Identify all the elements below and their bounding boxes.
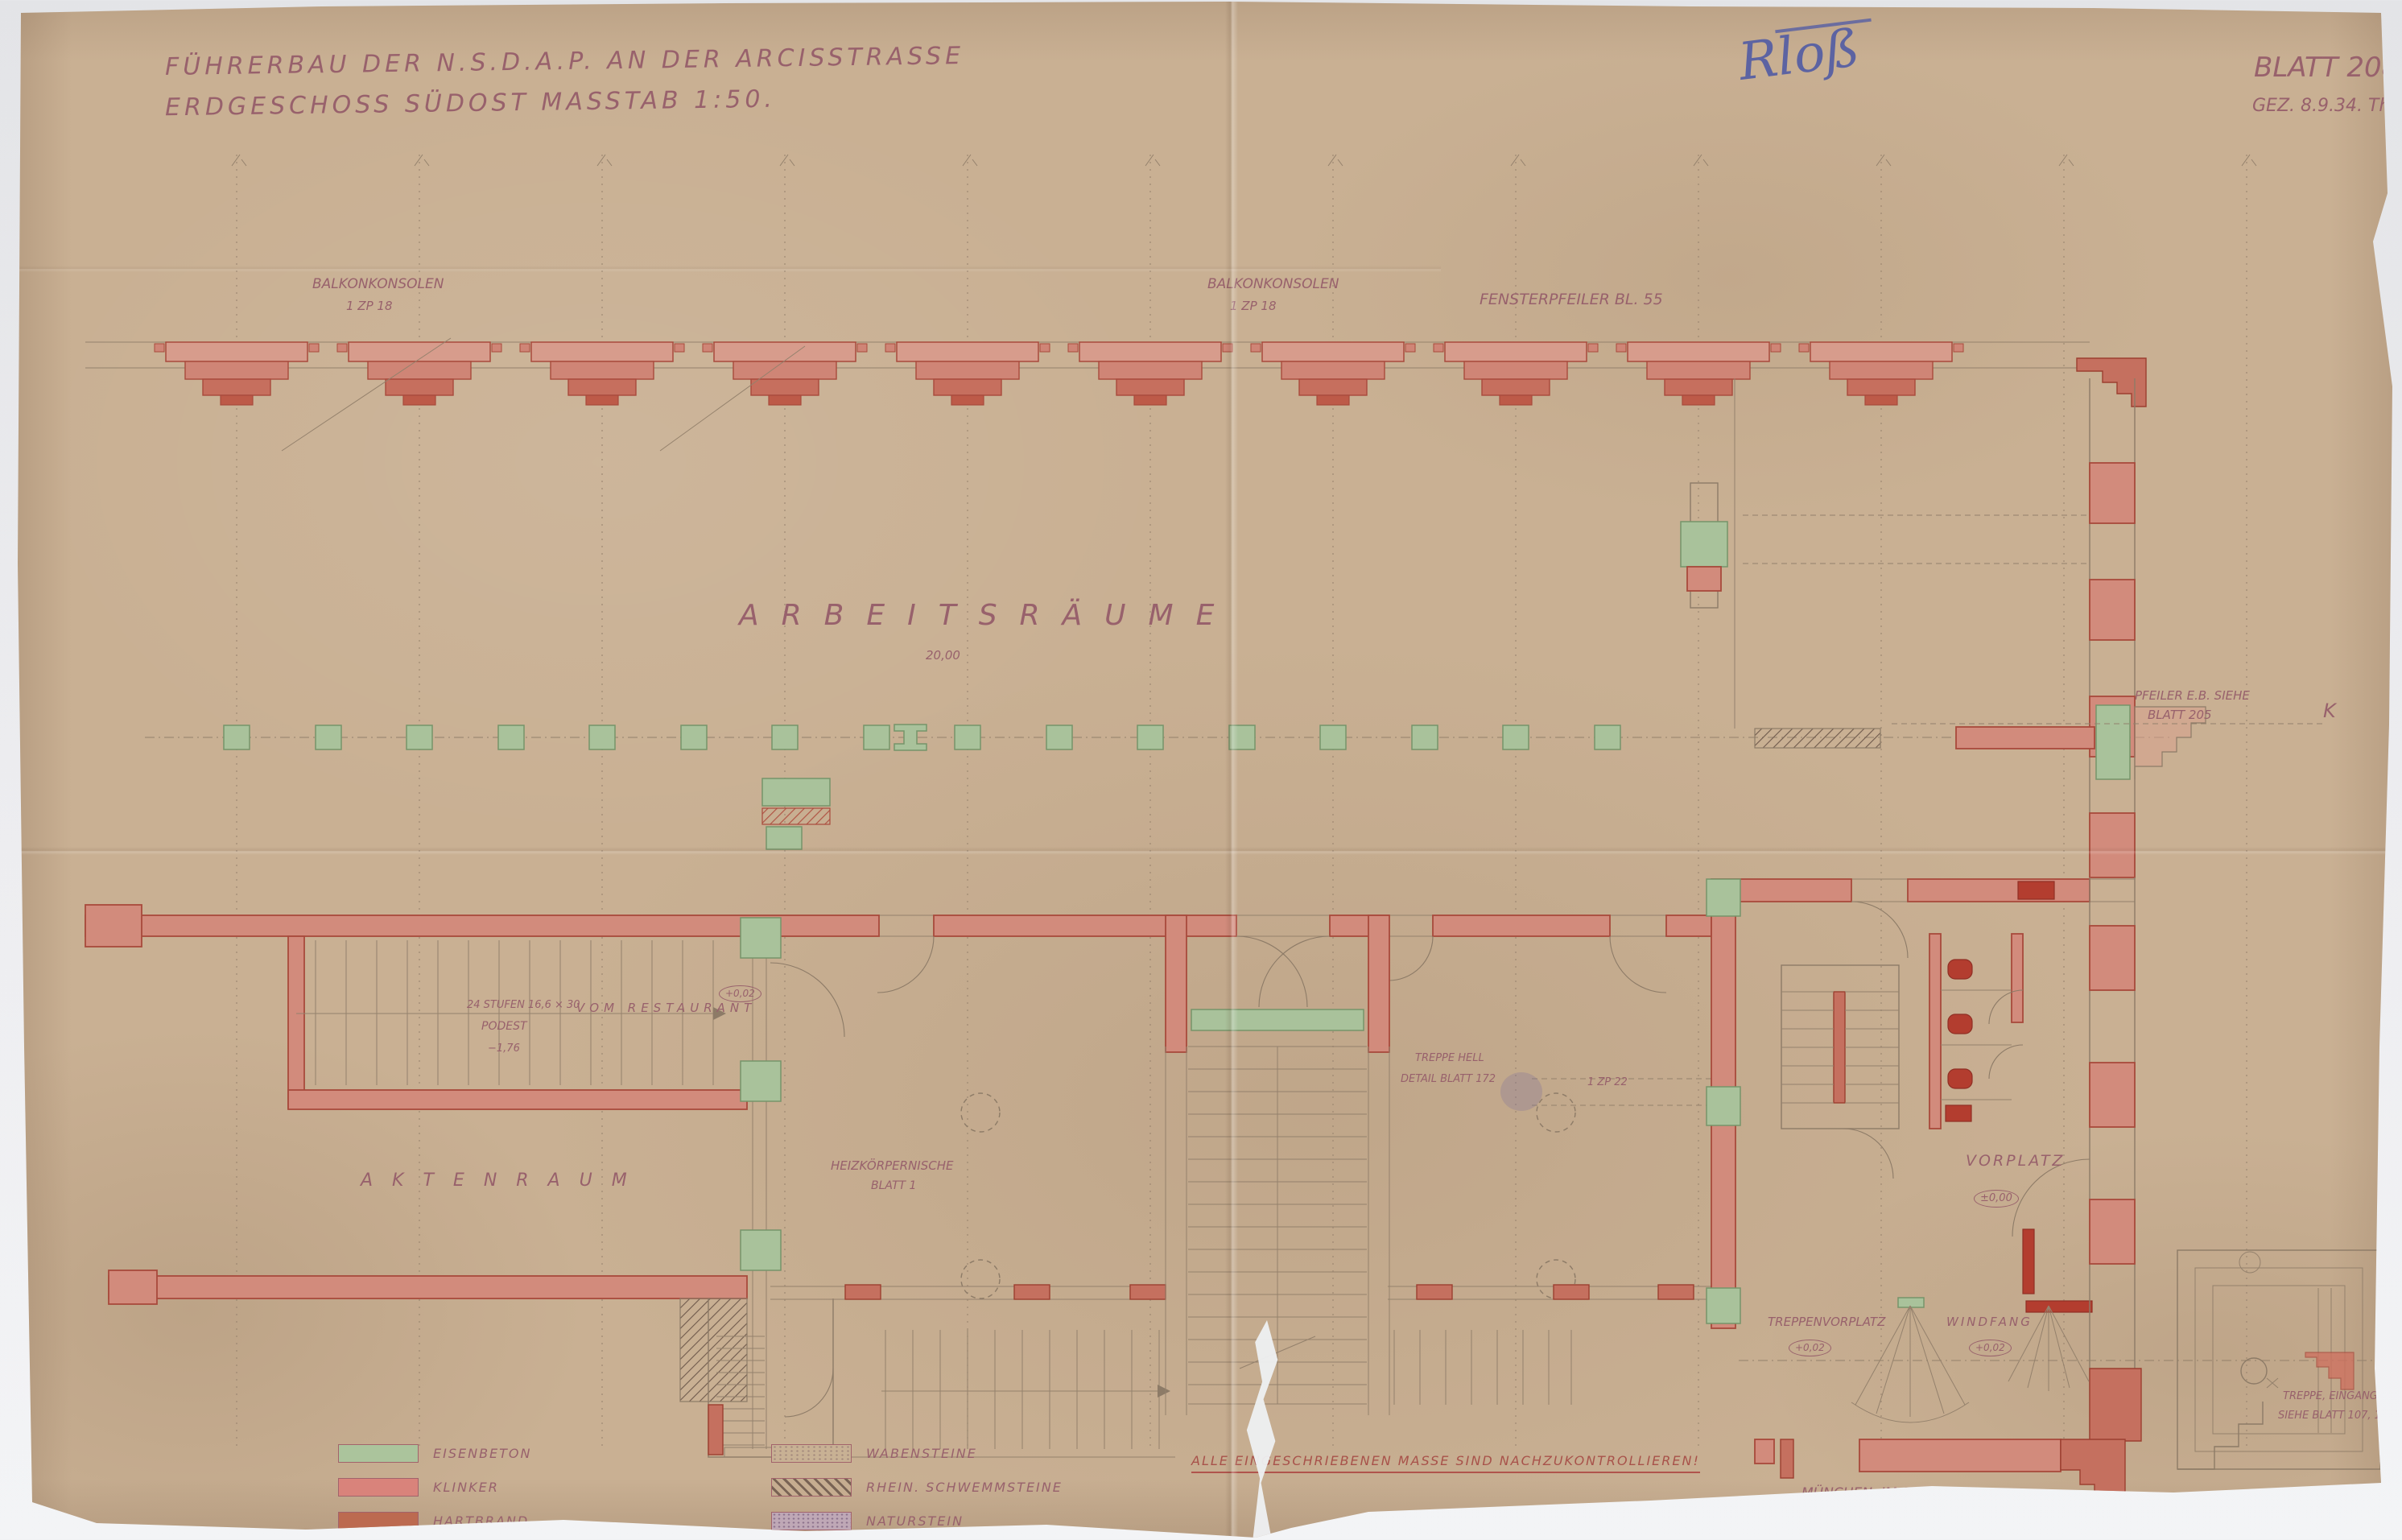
room-label-treppenvorplatz: TREPPENVORPLATZ <box>1768 1315 1885 1329</box>
pfeiler-note-line1: PFEILER E.B. SIEHE <box>2135 689 2250 703</box>
legend-label-hartbrand: HARTBRAND <box>433 1514 529 1529</box>
vertical-fold-crease <box>1225 0 1238 1540</box>
drawing-sheet: FÜHRERBAU DER N.S.D.A.P. AN DER ARCISSTR… <box>0 0 2402 1540</box>
stair-steps-note: 24 STUFEN 16,6 × 30 <box>467 1000 580 1011</box>
level-plus-002-windfang: +0,02 <box>1969 1340 2012 1356</box>
pfeiler-note-line2: BLATT 205 <box>2148 708 2212 722</box>
entrance-stair-inset <box>2177 1250 2380 1469</box>
axis-mark-k: K <box>2323 700 2336 721</box>
level-zero: ±0,00 <box>1974 1190 2019 1208</box>
entrance-stair-note-line1: TREPPE, EINGANG <box>2283 1391 2378 1402</box>
legend-swatch-eisenbeton <box>338 1444 419 1463</box>
legend-swatch-wabensteine <box>771 1444 852 1463</box>
legend-label-naturstein: NATURSTEIN <box>866 1514 964 1529</box>
level-minus-176: −1,76 <box>488 1043 520 1055</box>
room-label-aktenraum: AKTENRAUM <box>361 1171 646 1191</box>
entrance-stair-note-line2: SIEHE BLATT 107, 108, 109 <box>2278 1410 2402 1422</box>
drawn-date: GEZ. 8.9.34. Th. <box>2252 97 2396 116</box>
stair-podest: PODEST <box>481 1021 527 1033</box>
centre-left-room <box>770 1093 1170 1449</box>
upper-right-rooms <box>1681 358 2146 877</box>
north-wall <box>85 879 2135 1007</box>
legend-label-eisenbeton: EISENBETON <box>433 1447 531 1461</box>
legend-row-schwemmsteine: RHEIN. SCHWEMMSTEINE <box>771 1478 1063 1497</box>
sheet-number: BLATT 208. <box>2254 53 2402 83</box>
horizontal-crease <box>0 847 2402 855</box>
room-label-vorplatz: VORPLATZ <box>1966 1153 2065 1170</box>
place-date: MÜNCHEN, IM SEPT. 1934. <box>1801 1486 1981 1501</box>
scan-background: FÜHRERBAU DER N.S.D.A.P. AN DER ARCISSTR… <box>0 0 2402 1540</box>
level-plus-002-stair: +0,02 <box>719 985 761 1002</box>
legend-swatch-schwemmsteine <box>771 1478 852 1497</box>
heizkoerpernische-line2: BLATT 1 <box>871 1180 916 1192</box>
central-staircase <box>1166 915 1389 1415</box>
legend-label-klinker: KLINKER <box>433 1480 499 1495</box>
legend-label-wabensteine: WABENSTEINE <box>866 1447 977 1461</box>
level-plus-002-treppenvorplatz: +0,02 <box>1789 1340 1831 1356</box>
duct-ref-zp22: 1 ZP 22 <box>1587 1077 1628 1088</box>
treppe-hell-detail-ref: DETAIL BLATT 172 <box>1401 1074 1496 1085</box>
dimension-20m: 20,00 <box>926 649 960 663</box>
stair-from-restaurant: VOM RESTAURANT <box>576 1001 756 1015</box>
legend-row-hartbrand: HARTBRAND <box>338 1512 529 1530</box>
legend-row-klinker: KLINKER <box>338 1478 499 1497</box>
legend-row-wabensteine: WABENSTEINE <box>771 1444 977 1463</box>
legend-label-schwemmsteine: RHEIN. SCHWEMMSTEINE <box>866 1480 1063 1495</box>
legend-row-naturstein: NATURSTEIN <box>771 1512 964 1530</box>
balkonkonsolen-label-1: BALKONKONSOLEN <box>312 277 444 292</box>
centre-right-room <box>1368 1072 1711 1405</box>
horizontal-crease-upper <box>0 266 1441 272</box>
fensterpfeiler-label: FENSTERPFEILER BL. 55 <box>1480 291 1663 308</box>
balkonkonsolen-ref-1: 1 ZP 18 <box>346 299 393 313</box>
entrance-fan-stairs <box>1739 1298 2395 1513</box>
legend-row-eisenbeton: EISENBETON <box>338 1444 531 1463</box>
legend-swatch-klinker <box>338 1478 419 1497</box>
room-label-windfang: WINDFANG <box>1946 1315 2033 1329</box>
legend-swatch-hartbrand <box>338 1512 419 1530</box>
balcony-pier-band <box>85 338 2090 451</box>
treppe-hell-label: TREPPE HELL <box>1415 1053 1484 1064</box>
floor-plan-linework <box>0 0 2402 1540</box>
legend-swatch-naturstein <box>771 1512 852 1530</box>
room-label-arbeitsraeume: ARBEITSRÄUME <box>739 600 1236 632</box>
heizkoerpernische-line1: HEIZKÖRPERNISCHE <box>831 1159 953 1173</box>
